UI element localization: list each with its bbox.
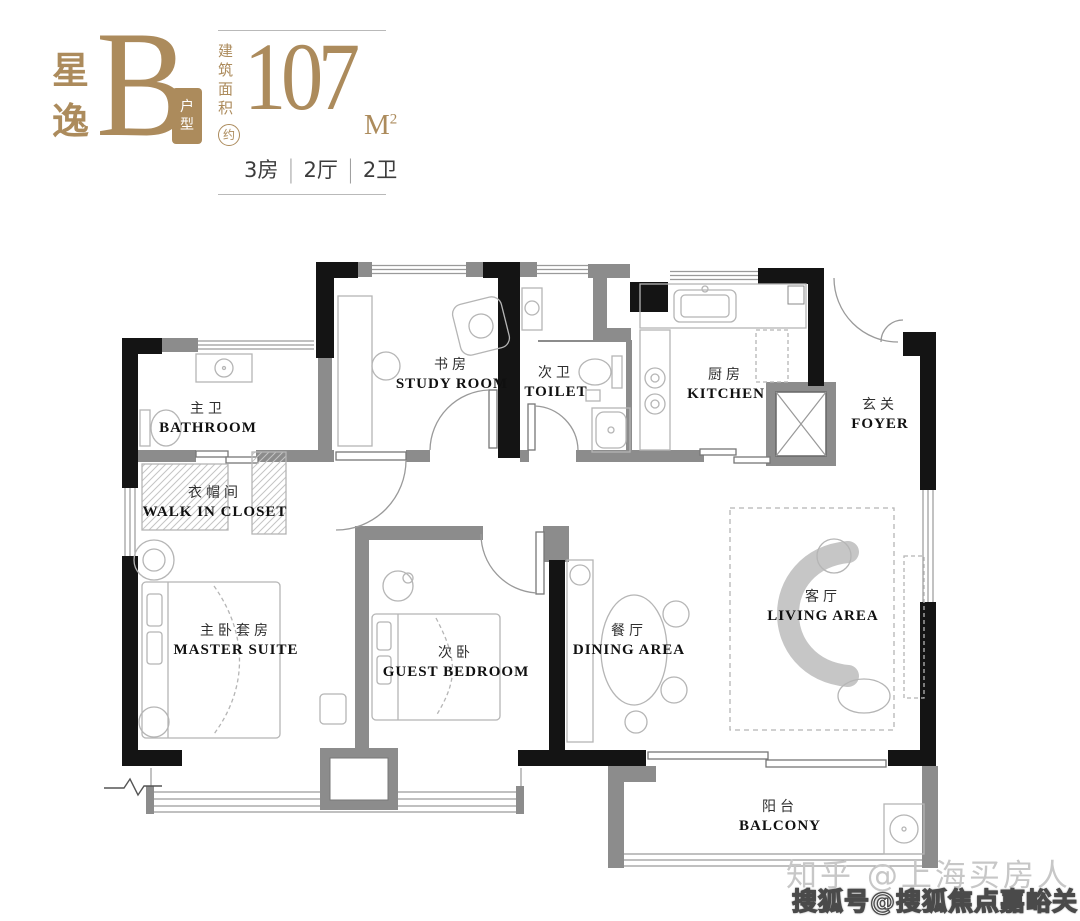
room-label-balcony-cn: 阳台	[739, 798, 821, 817]
washing-machine-icon	[884, 804, 924, 854]
room-label-master: 主卧套房 MASTER SUITE	[174, 622, 299, 660]
room-label-guest-en: GUEST BEDROOM	[383, 663, 530, 682]
room-label-foyer-cn: 玄关	[851, 396, 909, 415]
room-label-closet: 衣帽间 WALK IN CLOSET	[143, 484, 288, 522]
kitchen-sliding-door	[700, 449, 770, 463]
living-side-window	[920, 490, 936, 602]
room-label-kitchen-en: KITCHEN	[687, 385, 765, 404]
room-label-balcony: 阳台 BALCONY	[739, 798, 821, 836]
balcony-sliding-door	[648, 752, 886, 767]
room-label-foyer-en: FOYER	[851, 415, 909, 434]
room-label-bathroom-en: BATHROOM	[159, 419, 257, 438]
room-label-toilet: 次卫 TOILET	[524, 364, 587, 402]
room-label-dining-en: DINING AREA	[573, 641, 685, 660]
room-label-dining-cn: 餐厅	[573, 622, 685, 641]
study-door	[430, 390, 497, 450]
room-label-master-cn: 主卧套房	[174, 622, 299, 641]
room-label-foyer: 玄关 FOYER	[851, 396, 909, 434]
kitchen-flue-box	[788, 286, 804, 304]
entry-door-main-arc	[834, 278, 898, 342]
kitchen-window	[670, 272, 758, 280]
room-label-closet-cn: 衣帽间	[143, 484, 288, 503]
room-label-living-en: LIVING AREA	[767, 607, 878, 626]
room-label-toilet-cn: 次卫	[524, 364, 587, 383]
watermark-sohu: 搜狐号@搜狐焦点嘉峪关站	[792, 882, 1080, 921]
master-suite-door	[336, 452, 406, 530]
bathroom-sliding-door	[196, 451, 258, 463]
room-label-bathroom: 主卫 BATHROOM	[159, 400, 257, 438]
bay-column-box	[330, 758, 388, 800]
room-label-guest: 次卧 GUEST BEDROOM	[383, 644, 530, 682]
room-label-master-en: MASTER SUITE	[174, 641, 299, 660]
room-label-guest-cn: 次卧	[383, 644, 530, 663]
bathroom-window	[198, 341, 314, 349]
room-label-living-cn: 客厅	[767, 588, 878, 607]
toilet-door	[528, 404, 578, 450]
entry-door-small-arc	[881, 320, 903, 342]
floor-plan-drawing	[0, 0, 1080, 921]
room-label-kitchen: 厨房 KITCHEN	[687, 366, 765, 404]
room-label-kitchen-cn: 厨房	[687, 366, 765, 385]
room-label-study-cn: 书房	[396, 356, 508, 375]
room-label-toilet-en: TOILET	[524, 383, 587, 402]
room-label-study-en: STUDY ROOM	[396, 375, 508, 394]
room-label-balcony-en: BALCONY	[739, 817, 821, 836]
room-label-dining: 餐厅 DINING AREA	[573, 622, 685, 660]
room-label-living: 客厅 LIVING AREA	[767, 588, 878, 626]
room-label-closet-en: WALK IN CLOSET	[143, 503, 288, 522]
floorplan-page: 星 逸 B 户 型 建筑 面积 约 107 M2 3房 |	[0, 0, 1080, 921]
guest-bedroom-door	[481, 532, 544, 594]
closet-side-window	[122, 488, 138, 556]
room-label-bathroom-cn: 主卫	[159, 400, 257, 419]
study-window	[372, 266, 466, 274]
toilet-window	[537, 266, 588, 274]
room-label-study: 书房 STUDY ROOM	[396, 356, 508, 394]
